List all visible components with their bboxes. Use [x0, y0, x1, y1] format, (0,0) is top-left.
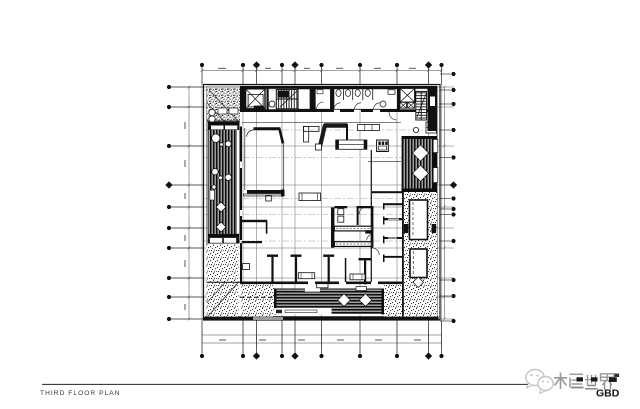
svg-text:GBD: GBD — [596, 388, 620, 400]
svg-text:THIRD FLOOR PLAN: THIRD FLOOR PLAN — [40, 390, 121, 397]
